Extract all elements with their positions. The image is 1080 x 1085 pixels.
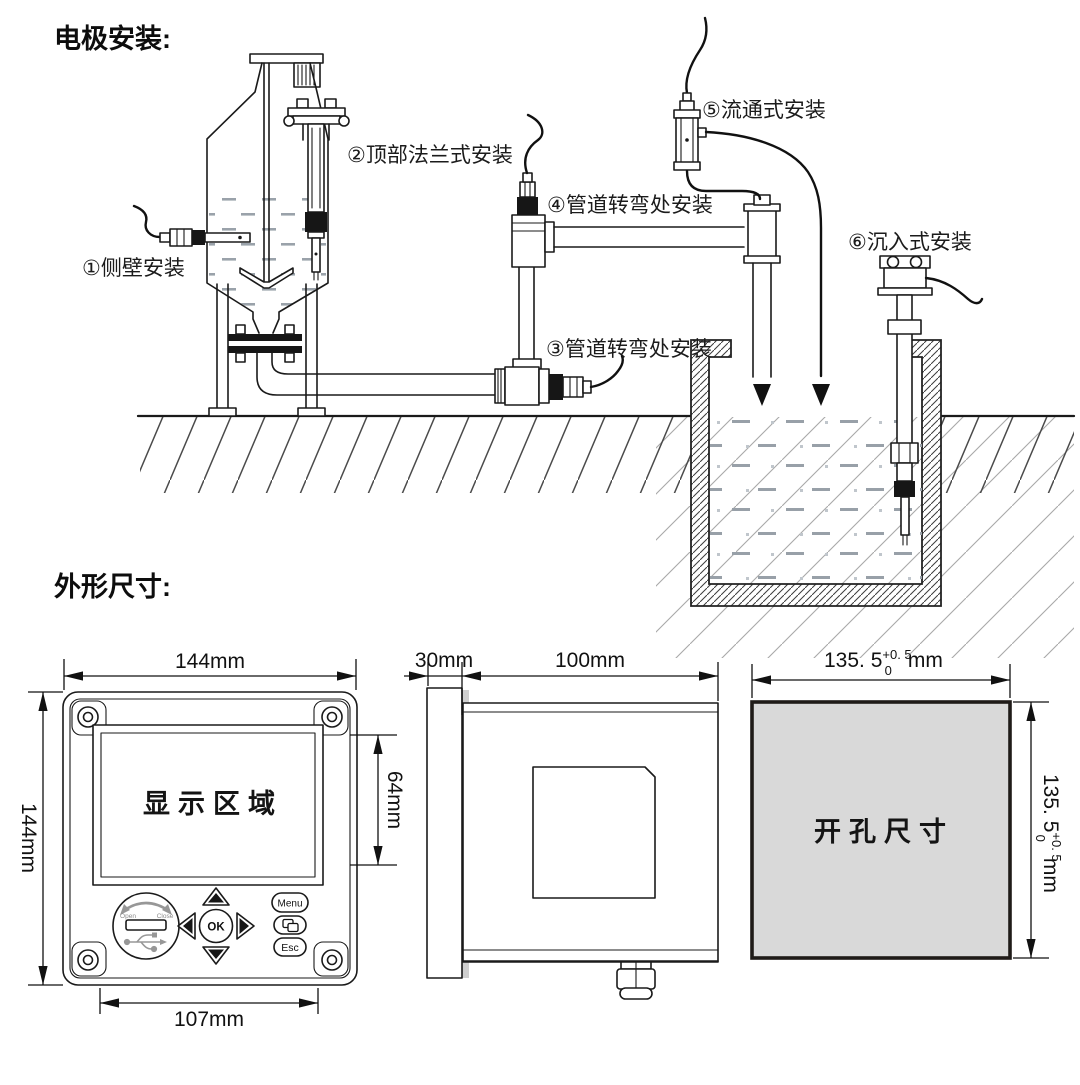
- side-bezel: [427, 688, 462, 978]
- front-view: 显示区域 Open Close: [17, 650, 406, 1031]
- function-keys: Menu Esc: [272, 893, 308, 956]
- ground-hatch-right: [941, 417, 1074, 493]
- cutout-label: 开孔尺寸: [814, 817, 954, 847]
- cutout-view: 开孔尺寸 135. 5+0. 50mm 135. 5+0. 50mm: [752, 647, 1064, 958]
- dim-135-top: 135. 5+0. 50mm: [824, 647, 943, 678]
- ground-and-pit: [138, 340, 1074, 658]
- immersion-pole: [897, 295, 912, 445]
- side-body: [463, 703, 718, 962]
- dim-front-height: 144mm: [17, 692, 63, 985]
- label-flow-through: ⑤流通式安装: [702, 99, 826, 122]
- electrode-install-section: 电极安装:: [54, 18, 1074, 658]
- electrode-cable: [134, 206, 160, 237]
- pipe-bend-assembly-4: [512, 115, 780, 406]
- electrode-cable: [686, 18, 706, 93]
- dim-30: 30mm: [415, 649, 473, 672]
- dim-cutout-height: 135. 5+0. 50mm: [1013, 702, 1064, 958]
- label-submersion: ⑥沉入式安装: [848, 231, 972, 254]
- drop-pipe: [753, 263, 771, 377]
- dim-keypad-width: 107mm: [100, 988, 318, 1031]
- usb-close-label: Close: [157, 913, 174, 920]
- menu-label: Menu: [277, 899, 302, 910]
- flow-arrow: [753, 384, 771, 406]
- flow-arrow: [812, 384, 830, 406]
- tank-top-plate: [250, 54, 323, 63]
- dim-135-right: 135. 5+0. 50mm: [1033, 774, 1064, 893]
- pipe-bend-assembly-3: [495, 267, 623, 405]
- ok-label: OK: [207, 922, 225, 934]
- label-pipe-bend-4: ④管道转弯处安装: [547, 194, 713, 217]
- heading-electrode-install: 电极安装:: [54, 24, 171, 54]
- dim-107: 107mm: [174, 1008, 244, 1031]
- side-view: 30mm 100mm: [404, 649, 718, 999]
- dim-100: 100mm: [555, 649, 625, 672]
- riser-pipe: [519, 267, 534, 360]
- electrode-cable: [926, 278, 982, 303]
- cable-gland: [617, 962, 655, 999]
- usb-cover[interactable]: Open Close: [113, 893, 179, 959]
- electrode-shaft: [308, 124, 324, 212]
- dim-64: 64mm: [383, 771, 406, 829]
- usb-open-label: Open: [120, 913, 136, 920]
- label-pipe-bend-3: ③管道转弯处安装: [546, 338, 712, 361]
- electrode-cable: [525, 115, 542, 173]
- label-side-wall: ①侧壁安装: [82, 257, 185, 280]
- heading-outline-dimensions: 外形尺寸:: [54, 572, 171, 602]
- horizontal-pipe: [554, 227, 744, 247]
- dim-front-width: 144mm: [64, 650, 356, 690]
- display-area-label: 显示区域: [143, 789, 283, 819]
- label-top-flange: ②顶部法兰式安装: [347, 144, 513, 167]
- esc-label: Esc: [281, 942, 299, 954]
- dim-144-left: 144mm: [17, 803, 40, 873]
- technical-drawing-page: 电极安装:: [0, 0, 1080, 1085]
- technical-drawing: 电极安装:: [0, 0, 1080, 1085]
- pit-water: [710, 404, 922, 583]
- dim-display-height: 64mm: [350, 735, 406, 865]
- dim-144-top: 144mm: [175, 650, 245, 673]
- usb-slot[interactable]: [126, 920, 166, 930]
- ground-hatch-left: [140, 417, 691, 493]
- tank-bottom-flange: [228, 334, 302, 341]
